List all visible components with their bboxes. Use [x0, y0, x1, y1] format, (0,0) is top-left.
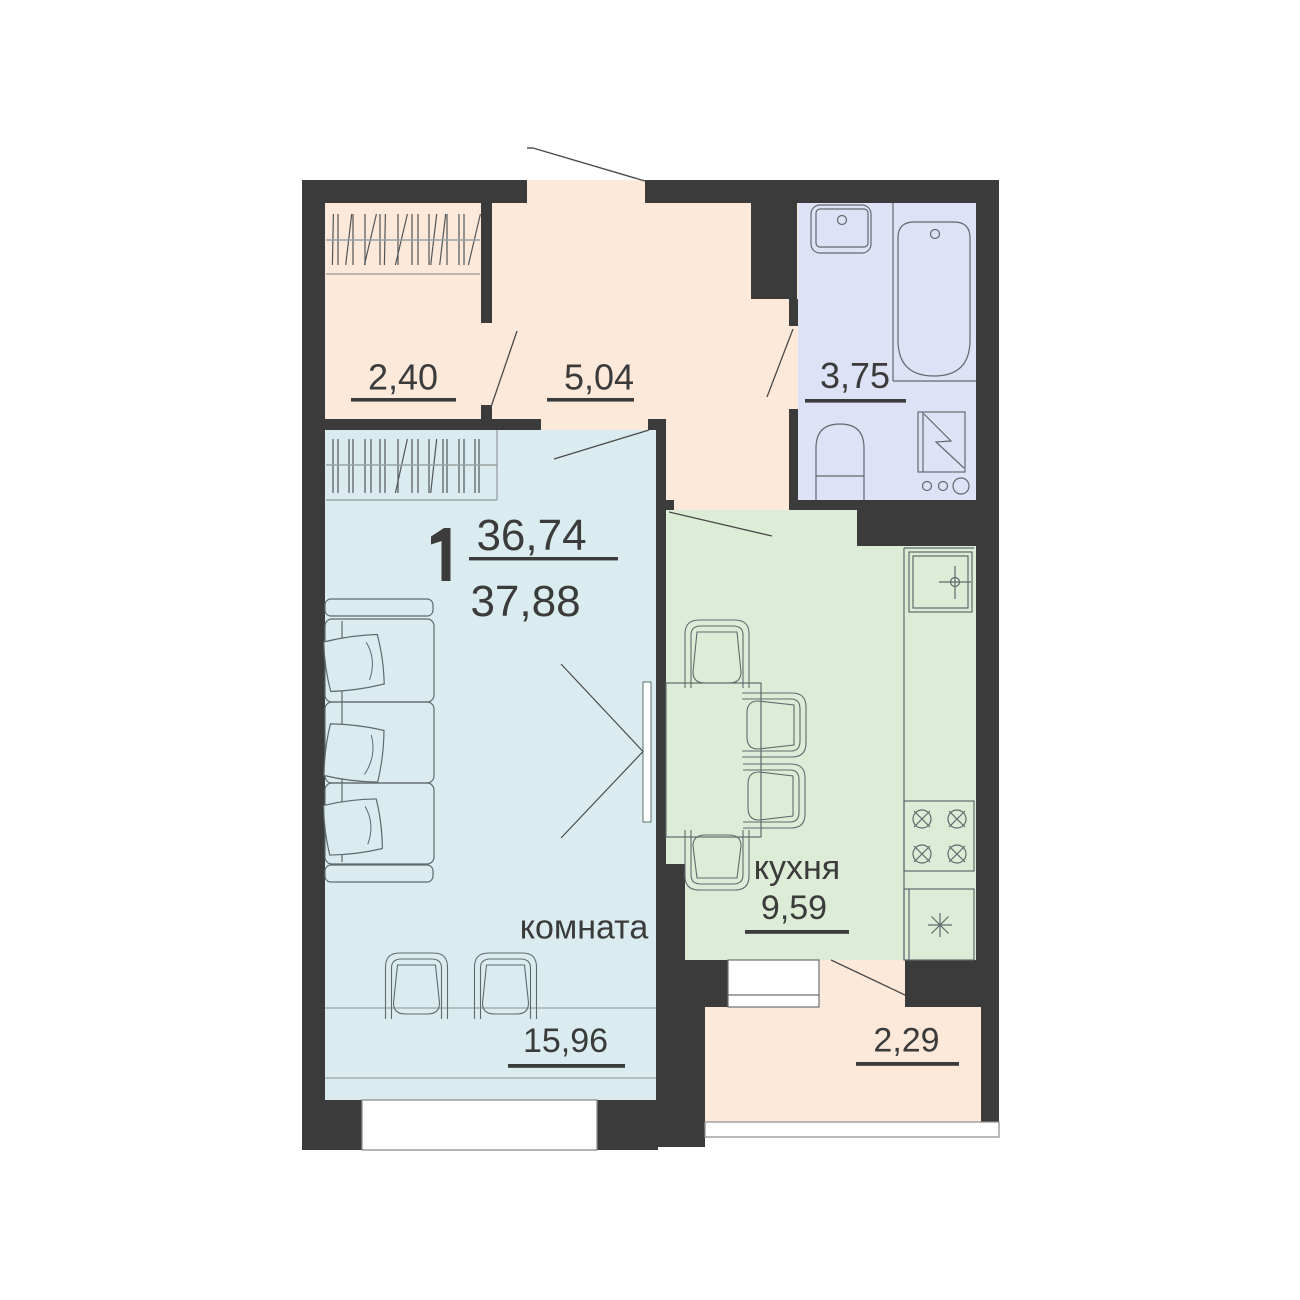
svg-text:комната: комната	[520, 909, 649, 947]
svg-text:36,74: 36,74	[476, 511, 586, 560]
svg-text:37,88: 37,88	[470, 577, 580, 626]
svg-text:5,04: 5,04	[564, 356, 634, 397]
svg-text:15,96: 15,96	[523, 1022, 608, 1060]
svg-text:3,75: 3,75	[820, 355, 890, 396]
svg-text:9,59: 9,59	[761, 889, 827, 927]
svg-text:2,29: 2,29	[873, 1022, 939, 1060]
svg-text:кухня: кухня	[754, 849, 840, 887]
svg-text:2,40: 2,40	[368, 356, 438, 397]
